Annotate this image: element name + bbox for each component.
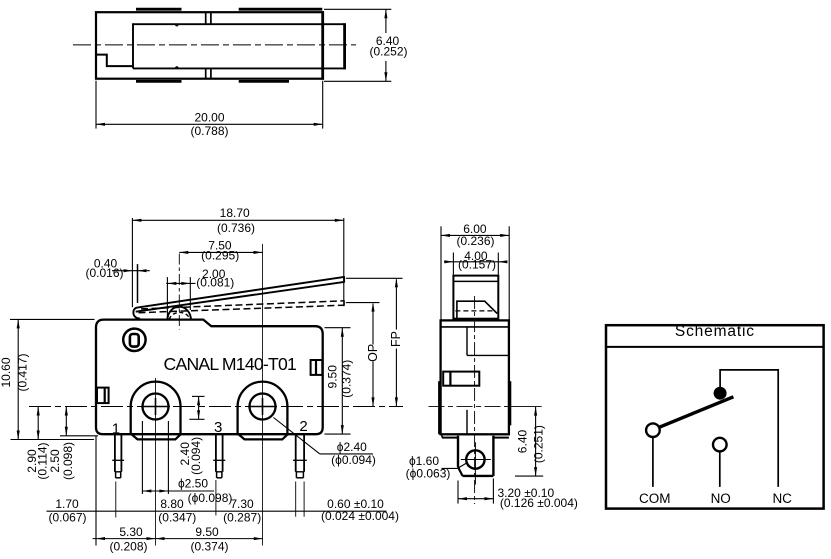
svg-text:(0.024 ±0.004): (0.024 ±0.004) <box>321 509 399 523</box>
svg-text:(ϕ0.098): (ϕ0.098) <box>188 491 233 505</box>
svg-text:8.80: 8.80 <box>160 497 184 511</box>
svg-text:20.00: 20.00 <box>194 111 224 125</box>
svg-text:ϕ2.40: ϕ2.40 <box>337 440 367 454</box>
svg-text:(0.374): (0.374) <box>339 360 353 398</box>
svg-text:3: 3 <box>214 419 222 436</box>
svg-text:7.30: 7.30 <box>230 497 254 511</box>
svg-text:OP: OP <box>366 344 380 362</box>
svg-text:(0.208): (0.208) <box>109 540 147 554</box>
svg-text:(0.252): (0.252) <box>369 44 407 58</box>
svg-text:(0.126 ±0.004): (0.126 ±0.004) <box>500 496 578 510</box>
svg-text:5.30: 5.30 <box>119 525 143 539</box>
svg-text:(0.094): (0.094) <box>189 437 203 475</box>
svg-text:2.50: 2.50 <box>48 449 62 473</box>
svg-text:(0.236): (0.236) <box>456 234 494 248</box>
svg-text:(0.347): (0.347) <box>158 510 196 524</box>
svg-text:(0.067): (0.067) <box>48 510 86 524</box>
svg-text:9.50: 9.50 <box>195 525 219 539</box>
svg-text:(0.417): (0.417) <box>15 353 29 391</box>
svg-text:2: 2 <box>299 418 307 435</box>
svg-text:(0.295): (0.295) <box>201 249 239 263</box>
svg-text:(0.736): (0.736) <box>217 221 255 235</box>
svg-text:1.70: 1.70 <box>55 497 79 511</box>
svg-text:Schematic: Schematic <box>675 323 755 340</box>
svg-text:COM: COM <box>639 491 671 506</box>
svg-text:9.50: 9.50 <box>325 365 339 389</box>
svg-text:ϕ2.50: ϕ2.50 <box>178 476 208 490</box>
svg-text:(ϕ0.063): (ϕ0.063) <box>406 467 451 481</box>
svg-text:(0.287): (0.287) <box>223 510 261 524</box>
svg-text:6.40: 6.40 <box>516 429 530 453</box>
svg-text:NO: NO <box>711 491 731 506</box>
svg-text:(0.081): (0.081) <box>196 275 234 289</box>
svg-text:18.70: 18.70 <box>220 206 250 220</box>
svg-text:10.60: 10.60 <box>0 357 13 387</box>
svg-text:(0.016): (0.016) <box>85 266 123 280</box>
svg-text:FP: FP <box>389 331 403 347</box>
svg-text:(0.098): (0.098) <box>61 442 75 480</box>
svg-text:NC: NC <box>772 491 792 506</box>
svg-text:(0.251): (0.251) <box>532 425 546 463</box>
svg-text:(0.374): (0.374) <box>190 540 228 554</box>
svg-text:1: 1 <box>112 420 120 437</box>
svg-text:(0.788): (0.788) <box>190 124 228 138</box>
svg-text:(ϕ0.094): (ϕ0.094) <box>331 453 376 467</box>
svg-text:CANAL M140-T01: CANAL M140-T01 <box>164 354 297 374</box>
svg-text:(0.157): (0.157) <box>458 257 496 271</box>
